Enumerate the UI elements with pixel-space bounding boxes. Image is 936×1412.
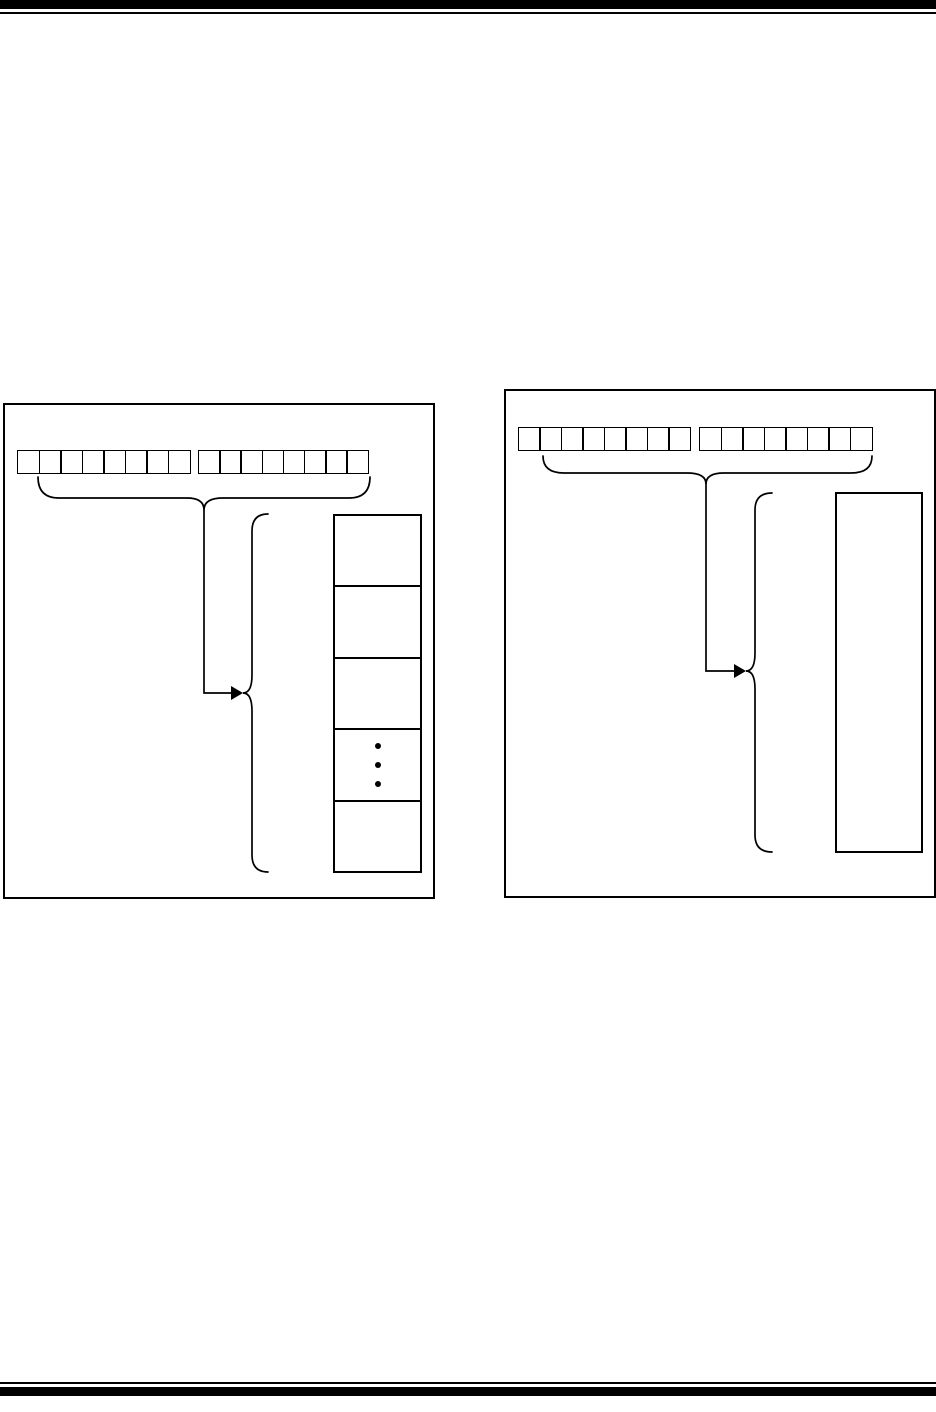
header-rule-thin — [0, 12, 936, 14]
memory-cell — [335, 657, 420, 728]
ellipsis-dot-icon — [375, 762, 381, 768]
document-page — [0, 0, 936, 1412]
registers-span-brace — [543, 456, 872, 484]
memory-column — [333, 514, 422, 873]
ellipsis-dot-icon — [375, 781, 381, 787]
figure-right-register-indirect-memory-block — [504, 389, 936, 898]
memory-cell — [335, 728, 420, 799]
memory-span-brace — [746, 493, 772, 852]
memory-block — [835, 492, 923, 853]
memory-cell — [837, 494, 921, 851]
footer-rule-thick — [0, 1387, 936, 1396]
figure-left-register-indirect-memory-rows — [3, 403, 435, 899]
arrow-head-icon — [231, 686, 243, 700]
arrow-head-icon — [734, 664, 746, 678]
memory-cell — [335, 516, 420, 585]
pointer-line — [204, 510, 232, 693]
memory-cell — [335, 800, 420, 871]
registers-span-brace — [38, 477, 370, 510]
memory-cell — [335, 585, 420, 656]
memory-span-brace — [243, 514, 268, 872]
header-rule-thick — [0, 0, 936, 9]
footer-rule-thin — [0, 1382, 936, 1384]
ellipsis-dot-icon — [375, 743, 381, 749]
pointer-line — [706, 484, 735, 671]
